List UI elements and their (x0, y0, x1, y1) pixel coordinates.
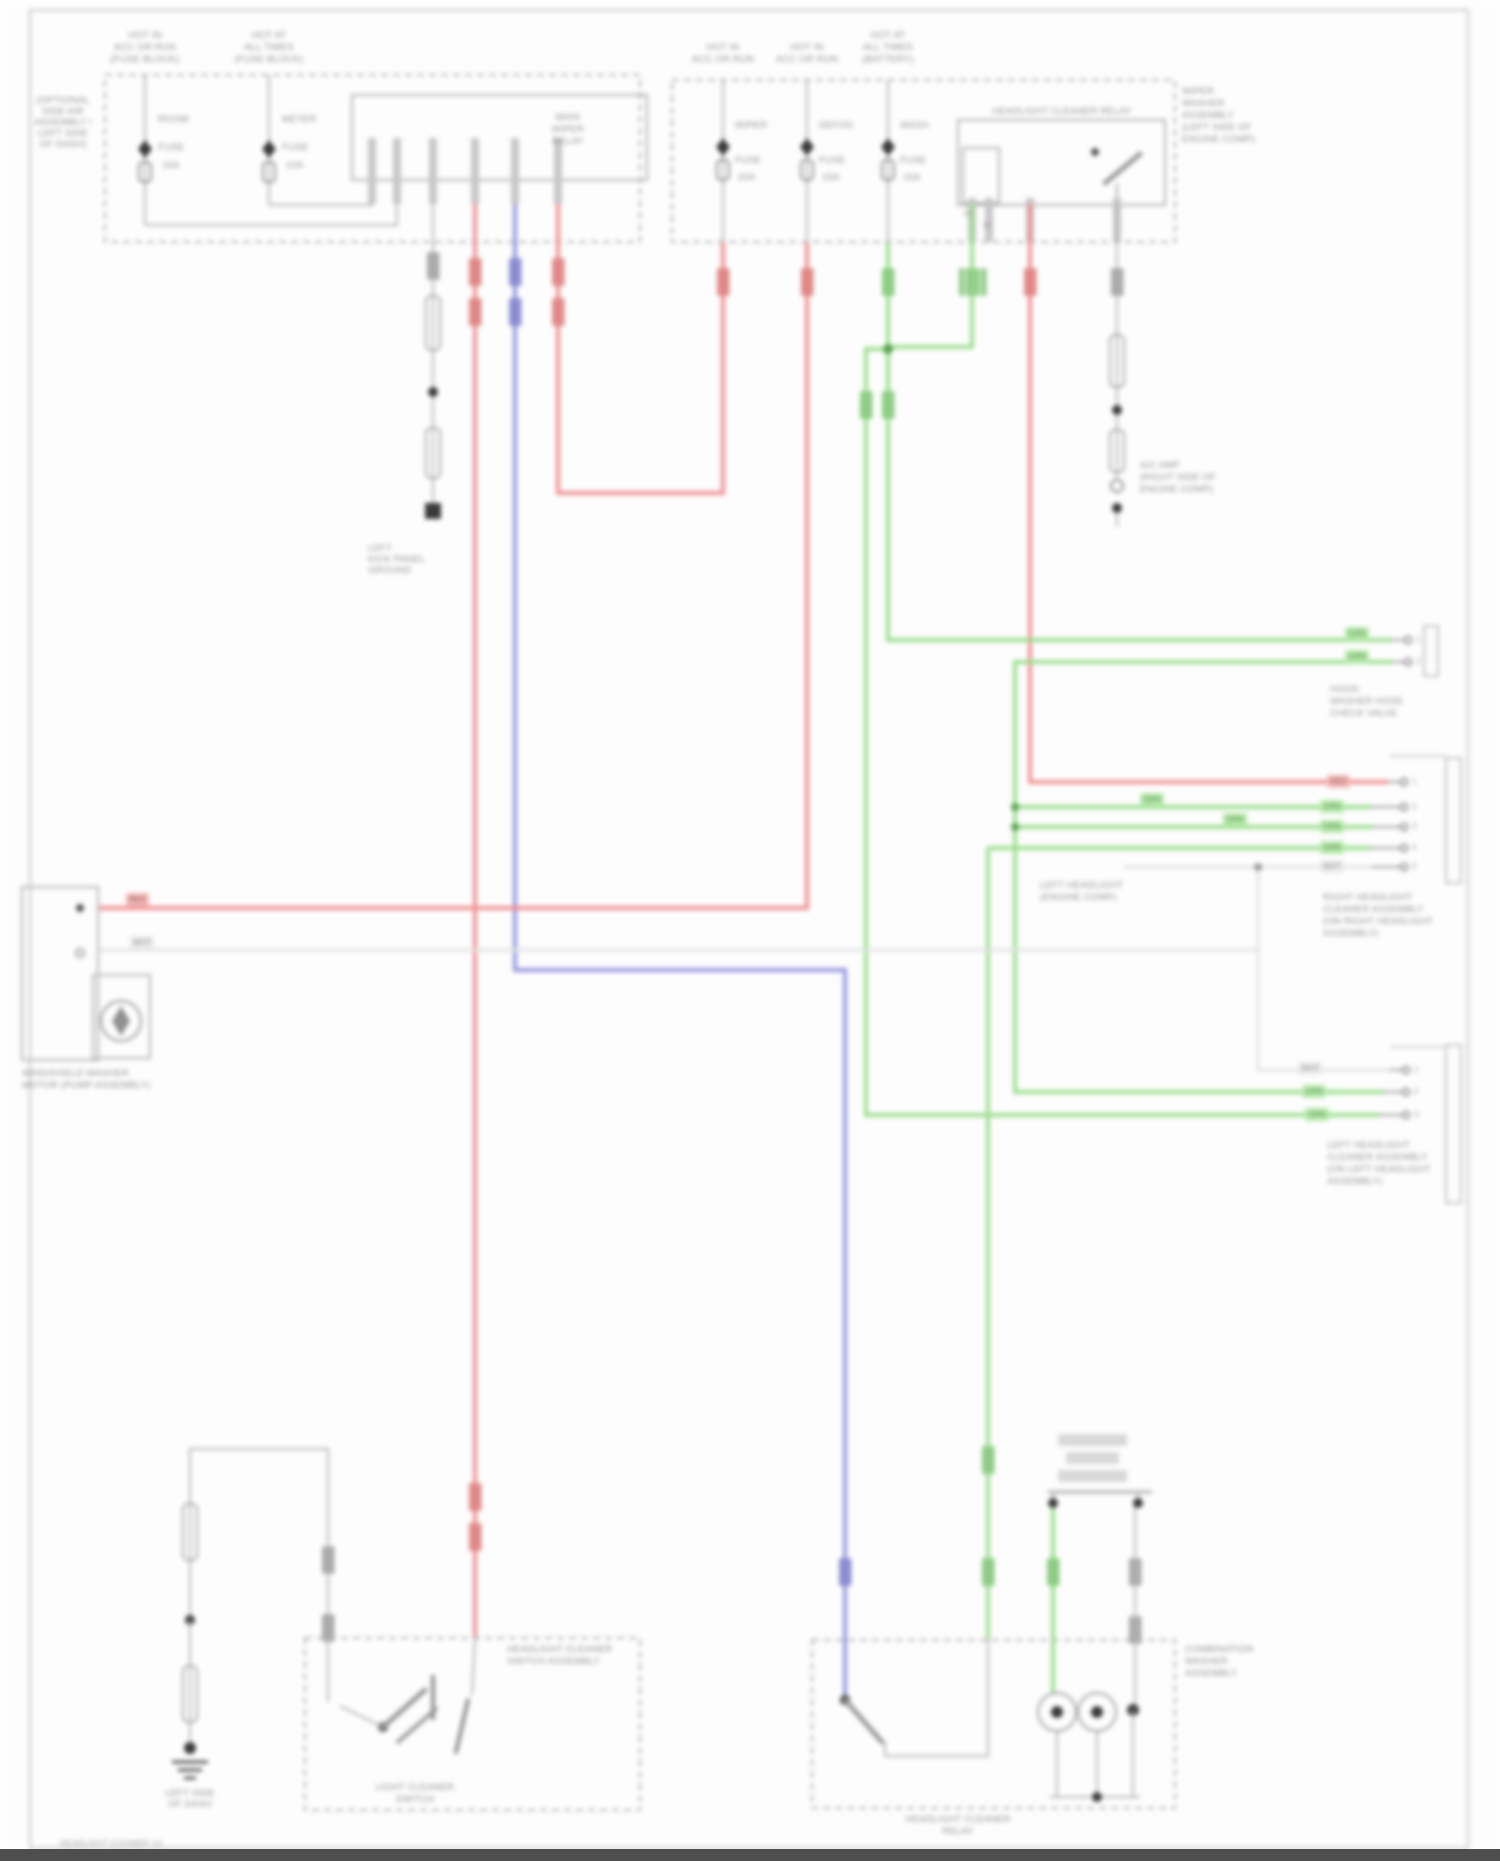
fuse-label: FUSE (900, 155, 926, 167)
fuse-label: WIPER (735, 120, 767, 132)
ac-amp-chain (1110, 204, 1124, 527)
feed-label: HOT AT (252, 30, 287, 42)
ac-amp-label: ENGINE COMP) (1140, 484, 1213, 496)
box-right-note: ENGINE COMP) (1182, 134, 1255, 146)
feed-label: HOT IN (706, 42, 739, 54)
wire-tag-green: GRN (1320, 841, 1344, 854)
box-left-note: OF DASH) (40, 139, 87, 151)
washer-switch-label: MOTOR (PUMP ASSEMBLY) (22, 1080, 150, 1092)
relay-pin-label: 85 (983, 220, 992, 232)
ground-label: LEFT (368, 543, 392, 555)
pin-number: 2 (1414, 1086, 1419, 1098)
wire-tag-red: RED (126, 893, 149, 906)
wire-tag-white: WHT (1298, 1062, 1322, 1075)
relay-pin-label: 30 (963, 208, 972, 220)
inline-connectors (322, 252, 1142, 1644)
feed-label: (FUSE BLOCK) (235, 54, 304, 66)
pin-number: 4 (1412, 842, 1417, 854)
wire-tag-green: GRN (1345, 650, 1369, 663)
pin-number: 1 (1412, 776, 1417, 788)
main-relay-label: MAIN (556, 112, 581, 124)
cleaner-switch-label: LIGHT CLEANER (376, 1782, 454, 1794)
pin-number: 1 (1414, 1064, 1419, 1076)
main-relay-label: WIPER (552, 124, 584, 136)
pin-number: 3 (1412, 821, 1417, 833)
connector-a (1392, 626, 1438, 676)
pin-number: 3 (1414, 1109, 1419, 1121)
wire-tag-green: GRN (1320, 800, 1344, 813)
box-right-note: WIPER (1182, 86, 1214, 98)
switch-ground-circuit (172, 1449, 328, 1778)
cleaner-relay-box (958, 120, 1165, 205)
cleaner-switch-label: SWITCH (396, 1794, 435, 1806)
ground-label: OF DASH (168, 1799, 212, 1811)
box-left-note: ASSEMBLY / (34, 117, 92, 129)
washer-switch-label: WINDSHIELD WASHER (22, 1068, 129, 1080)
wire-tag-white: WHT (130, 936, 154, 949)
fuse-label: WASH (900, 120, 929, 132)
pin-number: 5 (1412, 861, 1417, 873)
washer-motor-symbol (1048, 1434, 1152, 1508)
main-relay-label: RELAY (552, 136, 583, 148)
wire-tag-green: GRN (1305, 1108, 1329, 1121)
connector-c-label: (ON LEFT HEADLIGHT (1327, 1164, 1431, 1176)
wire-green-junctions (883, 344, 1019, 831)
connector-a-label: HOOD (1330, 684, 1359, 696)
connector-b-label: ASSEMBLY) (1323, 928, 1378, 940)
fuse-label: 15A (822, 172, 840, 184)
cleaner-switch-note: HEADLIGHT CLEANER (507, 1644, 612, 1656)
feed-label: ACC OR RUN (692, 54, 754, 66)
ground-label: GROUND (368, 565, 411, 577)
feed-label: HOT IN (790, 42, 823, 54)
fuse-label: METER (282, 114, 316, 126)
ground-label: LEFT SIDE (165, 1788, 215, 1800)
feed-label: HOT AT (871, 30, 906, 42)
feed-label: ALL TIMES (244, 42, 294, 54)
main-relay-pins (368, 138, 562, 204)
cleaner-relay-title: HEADLIGHT CLEANER RELAY (992, 106, 1131, 118)
wire-blue (515, 204, 845, 1700)
headlight-note: (ENGINE COMP) (1040, 892, 1117, 904)
headlight-note: LEFT HEADLIGHT (1040, 880, 1123, 892)
box-right-note: (LEFT SIDE OF (1182, 122, 1251, 134)
cleaner-relay-contact (1091, 148, 1140, 205)
pin-number: 1 (1416, 634, 1421, 646)
wire-tag-green: GRN (1140, 793, 1164, 806)
wire-tag-green: GRN (1345, 627, 1369, 640)
feed-label: (BATTERY) (862, 54, 913, 66)
fuse-label: DEFOG (819, 120, 854, 132)
wire-tag-red: RED (1327, 775, 1350, 788)
feed-label: ACC OR RUN (776, 54, 838, 66)
connector-c-label: CLEANER ASSEMBLY (1327, 1152, 1428, 1164)
connector-c-label: LEFT HEADLIGHT (1327, 1140, 1410, 1152)
feed-label: HOT IN (128, 30, 161, 42)
bottom-bar (0, 1849, 1500, 1861)
fuse-label: FUSE (158, 142, 184, 154)
fuse-label: 10A (286, 160, 304, 172)
ac-amp-label: A/C AMP (1140, 460, 1180, 472)
ac-amp-label: (RIGHT SIDE OF (1140, 472, 1216, 484)
fuse-label: FUSE (282, 142, 308, 154)
fuse-label: ROOM (158, 114, 188, 126)
box-left-note: SIDE AIR (42, 106, 84, 118)
ground-wire-chain (425, 204, 441, 519)
connector-c (1380, 1045, 1461, 1203)
wire-red-to-washer-switch (98, 242, 807, 908)
wire-tag-white: WHT (1320, 860, 1344, 873)
connector-b-label: CLEANER ASSEMBLY (1323, 904, 1424, 916)
fuse-label: FUSE (735, 155, 761, 167)
fuse-label: FUSE (819, 155, 845, 167)
white-wire-junction (1254, 863, 1262, 871)
connector-a-label: CHECK VALVE (1330, 708, 1397, 720)
connector-a-label: WASHER HOSE (1330, 696, 1403, 708)
wire-tag-green: GRN (1223, 813, 1247, 826)
feed-label: (FUSE BLOCK) (111, 54, 180, 66)
cleaner-switch-note: SWITCH ASSEMBLY (507, 1656, 600, 1668)
connector-c-label: ASSEMBLY) (1327, 1176, 1382, 1188)
box-left-note: LEFT SIDE (38, 128, 88, 140)
combination-note: WASHER (1185, 1656, 1228, 1668)
box-right-note: ASSEMBLY (1182, 110, 1234, 122)
connector-b-label: (ON RIGHT HEADLIGHT (1323, 916, 1433, 928)
cleaner-relay-label: RELAY (942, 1826, 973, 1838)
wire-tag-green: GRN (1320, 820, 1344, 833)
pin-number: 2 (1416, 656, 1421, 668)
washer-switch-box (22, 887, 150, 1060)
wiring-svg (0, 0, 1500, 1861)
cleaner-relay-bottom-box (812, 1640, 1175, 1808)
feed-label: ACC OR RUN (114, 42, 176, 54)
combination-note: COMBINATION (1185, 1644, 1254, 1656)
box-left-note: (OPTIONAL (36, 95, 89, 107)
wire-red-u (558, 204, 723, 493)
pin-number: 2 (1412, 801, 1417, 813)
combination-note: ASSEMBLY (1185, 1668, 1237, 1680)
connector-b-label: RIGHT HEADLIGHT (1323, 892, 1412, 904)
fuse-label: 15A (162, 160, 180, 172)
ground-label: KICK PANEL (368, 554, 425, 566)
feed-label: ALL TIMES (863, 42, 913, 54)
cleaner-relay-label: HEADLIGHT CLEANER (905, 1814, 1010, 1826)
fuse-label: 20A (738, 172, 756, 184)
page-border (30, 10, 1468, 1848)
wiring-diagram: HOT IN ACC OR RUN (FUSE BLOCK) HOT AT AL… (0, 0, 1500, 1861)
wire-tag-green: GRN (1302, 1085, 1326, 1098)
box-right-note: WASHER (1182, 98, 1225, 110)
page-footer: HEADLIGHT CLEANER 1/1 (60, 1838, 163, 1850)
fuse-label: 15A (903, 172, 921, 184)
